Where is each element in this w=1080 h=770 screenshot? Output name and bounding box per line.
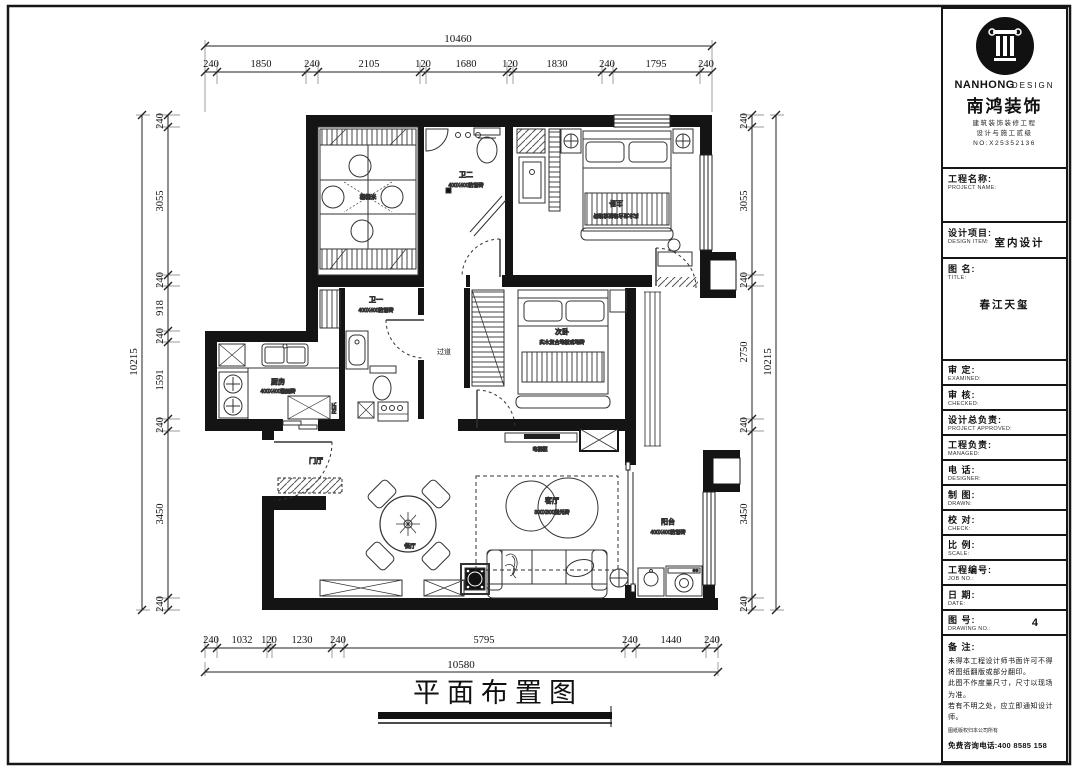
drawing-title: 平面布置图: [413, 678, 583, 708]
svg-text:2105: 2105: [359, 59, 380, 70]
niche-cabinet: [320, 290, 340, 328]
nightstand-right: [673, 129, 693, 153]
row-phone: 电 话: DESIGNER:: [943, 461, 1066, 486]
closet-strip: [549, 129, 560, 211]
svg-text:3450: 3450: [739, 504, 750, 525]
closet-shelf: [517, 129, 545, 153]
stove: [219, 372, 248, 418]
stool: [668, 239, 680, 251]
bed-runner: [516, 396, 610, 408]
toilet-2: [474, 128, 500, 163]
svg-text:3055: 3055: [739, 191, 750, 212]
fridge-label: REF.: [332, 402, 338, 414]
section-project-name: 工程名称: PROJECT NAME:: [943, 169, 1066, 223]
svg-text:2750: 2750: [739, 342, 750, 363]
dimension-chain-left: [136, 111, 180, 614]
bedroom2-label: 次卧: [555, 327, 569, 336]
svg-text:240: 240: [739, 113, 750, 129]
centerpiece: [396, 512, 420, 536]
svg-text:240: 240: [203, 59, 219, 70]
bath2-spec: 400X400防滑砖: [448, 182, 483, 189]
brand-en-2: DESIGN: [1012, 81, 1055, 90]
drawing-title-group: 平面布置图: [378, 678, 612, 727]
svg-text:3055: 3055: [155, 191, 166, 212]
section-design-item: 设计项目: DESIGN ITEM: 室内设计: [943, 223, 1066, 259]
room-master-bedroom: 主卧 实木复合地板或地砖: [517, 129, 693, 266]
bed-2: [516, 290, 610, 408]
washing-cabinet: [378, 402, 408, 421]
svg-text:1032: 1032: [232, 635, 253, 646]
laundry-sink: [638, 568, 664, 596]
pillow: [629, 142, 667, 162]
throw-figure: [505, 554, 517, 578]
railing-east: [644, 292, 661, 446]
corner-sink: [426, 129, 448, 151]
washing-machine: [666, 566, 702, 596]
brand-chinese: 南鸿装饰: [967, 92, 1043, 117]
svg-text:240: 240: [203, 635, 219, 646]
row-proofread: 校 对: CHECK:: [943, 511, 1066, 536]
room-tatami: 榻榻米: [318, 127, 418, 275]
dim-bottom-overall: 10580: [447, 659, 475, 671]
balcony-sliding-door: [626, 462, 635, 592]
svg-text:120: 120: [415, 59, 431, 70]
room-entry-dining: 门厅 餐厅: [278, 456, 489, 596]
dimension-text-left: 10215 240 3055 240 918 240 1591 240 3450…: [128, 113, 166, 612]
tv: [524, 434, 560, 439]
dim-top-overall: 10460: [444, 33, 472, 45]
pillow: [524, 301, 562, 321]
svg-text:1830: 1830: [547, 59, 568, 70]
ceiling-feature: [538, 478, 598, 538]
dining-label: 餐厅: [404, 542, 416, 550]
living-label: 客厅: [545, 496, 559, 505]
dimension-chain-top: [201, 40, 716, 112]
toilet-1: [370, 366, 396, 400]
svg-text:3450: 3450: [155, 504, 166, 525]
svg-text:240: 240: [155, 113, 166, 129]
dresser: [658, 239, 692, 266]
svg-text:240: 240: [304, 59, 320, 70]
chair: [364, 540, 395, 571]
room-bath2: 卫二 400X400防滑砖: [426, 128, 506, 236]
row-drawing-no: 图 号: DRAWING NO.: 4: [943, 611, 1066, 636]
window-east-upper: [700, 155, 712, 250]
nightstand: [610, 290, 626, 312]
logo-section: NANHONGDESIGN 南鸿装饰 建筑装饰装修工程 设计与施工贰级 NO:X…: [943, 9, 1066, 169]
room-balcony: 阳台 400X400防滑砖: [638, 517, 702, 596]
design-item-value: 室内设计: [977, 235, 1062, 250]
row-drawn: 制 图: DRAWN:: [943, 486, 1066, 511]
tv-cabinet: 电视柜: [505, 433, 577, 453]
tatami-cabinet-top: [320, 129, 416, 145]
bath1-door: [386, 320, 424, 358]
svg-text:1795: 1795: [646, 59, 667, 70]
drawing-title-label: 图 名:: [948, 262, 1061, 275]
svg-text:240: 240: [155, 596, 166, 612]
svg-text:240: 240: [739, 417, 750, 433]
bath2-label: 卫二: [459, 171, 473, 179]
row-scale: 比 例: SCALE:: [943, 536, 1066, 561]
svg-text:240: 240: [599, 59, 615, 70]
title-block: NANHONGDESIGN 南鸿装饰 建筑装饰装修工程 设计与施工贰级 NO:X…: [941, 7, 1068, 763]
svg-text:1440: 1440: [661, 635, 682, 646]
dining-table: [364, 478, 451, 571]
washbasin-1: [346, 331, 368, 369]
room-bedroom2: 次卧 实木复合地板或地砖: [472, 290, 626, 408]
brand-subtitle: 建筑装饰装修工程 设计与施工贰级 NO:X25352136: [973, 119, 1037, 148]
title-underline-bar: [378, 712, 612, 719]
section-notes: 备 注: 未得本工程设计师书面许可不得 将图纸翻版或部分翻印。 此图不作度量尺寸…: [943, 636, 1066, 761]
master-spec: 实木复合地板或地砖: [593, 212, 638, 219]
chair: [420, 478, 451, 509]
svg-text:120: 120: [261, 635, 277, 646]
svg-text:1591: 1591: [155, 370, 166, 391]
row-date: 日 期: DATE:: [943, 586, 1066, 611]
row-managed: 工程负责: MANAGED:: [943, 436, 1066, 461]
room-kitchen: REF. 厨房 400X400釉面砖: [217, 344, 339, 419]
svg-text:918: 918: [155, 300, 166, 316]
tatami-cushion: [381, 186, 403, 208]
room-bath1: 卫一 400X400防滑砖: [320, 290, 408, 421]
kitchen-sink: [262, 344, 308, 366]
tatami-cushion: [322, 186, 344, 208]
chair: [366, 478, 397, 509]
bath1-label: 卫一: [369, 296, 383, 304]
pillow: [586, 142, 624, 162]
fridge: [288, 396, 330, 419]
project-name-label: 工程名称:: [948, 172, 1061, 185]
notes-text: 未得本工程设计师书面许可不得 将图纸翻版或部分翻印。 此图不作度量尺寸，尺寸以现…: [948, 656, 1061, 723]
side-lamp: [610, 569, 628, 587]
bedroom2-spec: 实木复合地板或地砖: [539, 339, 584, 346]
svg-text:240: 240: [739, 596, 750, 612]
tatami-cushion: [351, 220, 373, 242]
tatami-cabinet-bottom: [320, 249, 416, 269]
svg-text:1680: 1680: [456, 59, 477, 70]
room-living: 客厅 800X800抛光砖: [476, 476, 628, 598]
section-drawing-title: 图 名: TITLE: 春江天玺: [943, 259, 1066, 361]
kitchen-label: 厨房: [271, 377, 285, 386]
wardrobe: [472, 290, 504, 386]
row-examined: 审 定: EXAMINED:: [943, 361, 1066, 386]
tv-cabinet-label: 电视柜: [532, 446, 547, 453]
svg-text:240: 240: [155, 272, 166, 288]
svg-text:240: 240: [622, 635, 638, 646]
nanhong-logo-icon: [976, 17, 1034, 75]
nightstand-left: [561, 129, 581, 153]
balcony-spec: 400X400防滑砖: [650, 529, 685, 536]
entry-cabinet: [278, 478, 342, 493]
pilaster-columns: [700, 252, 740, 492]
floor-plan-canvas: 10460 240 1850 240 2105 120 1680 120 183…: [0, 0, 1080, 770]
corridor-label: 过道: [437, 347, 451, 356]
svg-text:120: 120: [502, 59, 518, 70]
kitchen-sliding-door: [283, 421, 317, 429]
notes-copyright: 图纸版权归本公司所有: [948, 727, 1061, 734]
tatami-label: 榻榻米: [360, 193, 377, 201]
floor-unit: [461, 564, 489, 594]
row-project-approved: 设计总负责: PROJECT APPROVED:: [943, 411, 1066, 436]
svg-text:5795: 5795: [474, 635, 495, 646]
sofa: [487, 550, 607, 598]
entry-label: 门厅: [309, 456, 323, 465]
shaft: [358, 402, 374, 418]
sideboards: [320, 580, 464, 596]
brand-en-1: NANHONG: [954, 79, 1014, 91]
notes-label: 备 注:: [948, 640, 1061, 653]
master-bed: [581, 131, 673, 240]
sofa-pillow: [564, 557, 595, 580]
dim-left-overall: 10215: [128, 348, 140, 376]
svg-text:240: 240: [704, 635, 720, 646]
master-label: 主卧: [609, 199, 623, 208]
svg-text:1850: 1850: [251, 59, 272, 70]
dimension-text-right: 10215 240 3055 240 2750 240 3450 240: [739, 113, 774, 612]
svg-text:240: 240: [155, 417, 166, 433]
shower-screen: [470, 196, 506, 236]
drawing-sheet: 10460 240 1850 240 2105 120 1680 120 183…: [0, 0, 1080, 770]
pillow: [566, 301, 604, 321]
dim-right-overall: 10215: [762, 348, 774, 376]
ceiling-feature: [506, 481, 556, 531]
living-spec: 800X800抛光砖: [534, 509, 569, 516]
bed-runner: [581, 228, 673, 240]
drawing-number-value: 4: [1032, 617, 1038, 629]
svg-text:240: 240: [698, 59, 714, 70]
row-checked: 审 核: CHECKED:: [943, 386, 1066, 411]
dimension-text-bottom: 10580 240 1032 120 1230 240 5795 240 144…: [203, 635, 720, 671]
dimension-text-top: 10460 240 1850 240 2105 120 1680 120 183…: [203, 33, 714, 70]
duct-shaft: [580, 429, 618, 451]
svg-text:240: 240: [155, 328, 166, 344]
row-job-no: 工程编号: JOB NO.:: [943, 561, 1066, 586]
brand-english: NANHONGDESIGN: [954, 79, 1054, 91]
window-balcony-east: [703, 492, 715, 585]
hotline: 免费咨询电话:400 8585 158: [948, 740, 1061, 751]
window-master-north: [614, 115, 670, 127]
svg-text:240: 240: [739, 272, 750, 288]
svg-text:240: 240: [330, 635, 346, 646]
bath2-door: [462, 239, 500, 277]
balcony-label: 阳台: [661, 517, 675, 526]
bath1-spec: 400X400防滑砖: [358, 307, 393, 314]
chair: [420, 540, 451, 571]
blanket: [585, 193, 669, 225]
kitchen-spec: 400X400釉面砖: [260, 388, 295, 395]
blanket: [522, 352, 604, 382]
drawing-title-value: 春江天玺: [943, 297, 1066, 312]
rug: [476, 476, 618, 570]
svg-text:1230: 1230: [292, 635, 313, 646]
